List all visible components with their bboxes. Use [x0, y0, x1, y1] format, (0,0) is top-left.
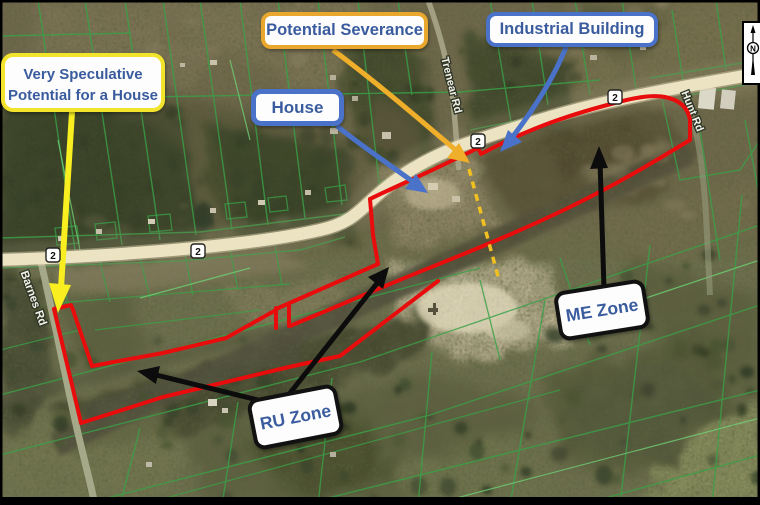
svg-text:2: 2 [195, 247, 201, 258]
svg-text:N: N [750, 45, 756, 54]
svg-text:2: 2 [475, 137, 481, 148]
svg-text:2: 2 [612, 93, 618, 104]
svg-text:2: 2 [50, 251, 56, 262]
